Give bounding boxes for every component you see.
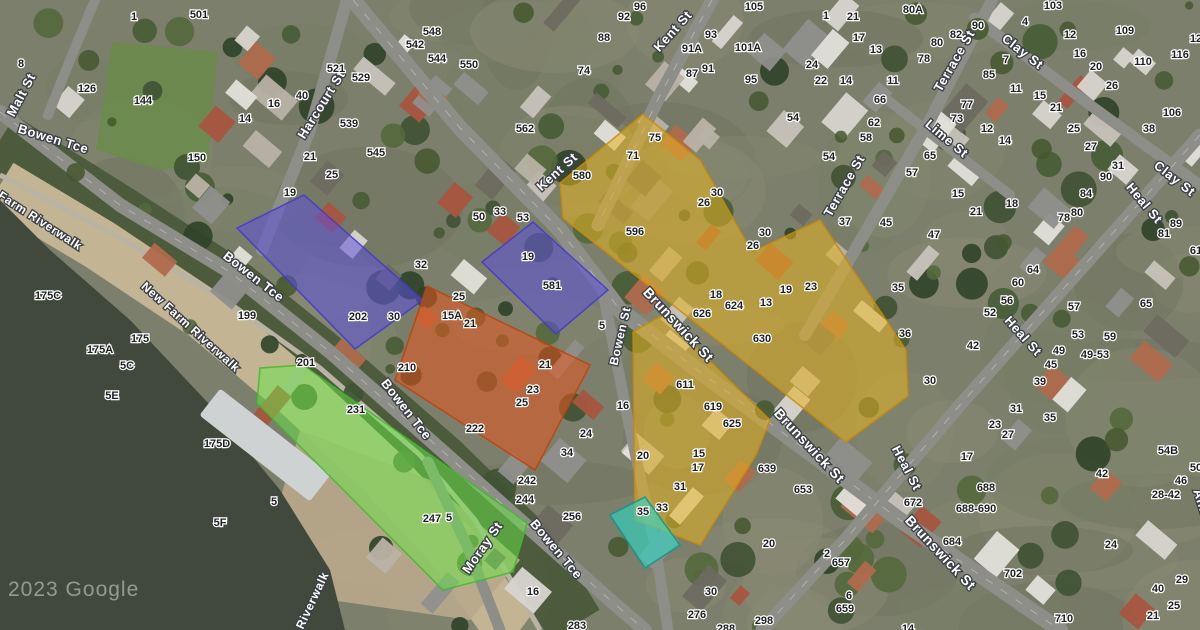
house-number: 639 xyxy=(758,463,776,475)
house-number: 50 xyxy=(1190,462,1200,474)
house-number: 56 xyxy=(1001,295,1013,307)
satellite-map[interactable]: Malt StBowen TceHarcourt StKent StKent S… xyxy=(0,0,1200,630)
house-number: 37 xyxy=(839,216,851,228)
house-number: 29 xyxy=(1176,574,1188,586)
tree xyxy=(414,148,440,174)
house-number: 501 xyxy=(190,9,208,21)
house-number: 12 xyxy=(1064,29,1076,41)
house-number: 21 xyxy=(464,318,476,330)
house-number: 73 xyxy=(951,113,963,125)
house-number: 4 xyxy=(1022,16,1029,28)
tree xyxy=(381,123,406,148)
tree xyxy=(889,128,905,144)
tree xyxy=(385,364,395,374)
house-number: 653 xyxy=(794,484,812,496)
house-number: 105 xyxy=(745,1,763,13)
house-number: 672 xyxy=(904,497,922,509)
tree xyxy=(995,234,1012,251)
house-number: 624 xyxy=(725,300,744,312)
house-number: 59 xyxy=(1104,331,1116,343)
house-number: 16 xyxy=(617,400,629,412)
house-number: 84 xyxy=(1080,188,1093,200)
tree xyxy=(538,113,564,139)
tree xyxy=(78,50,99,71)
tree xyxy=(261,335,279,353)
tree xyxy=(107,117,116,126)
house-number: 58 xyxy=(860,132,872,144)
tree xyxy=(1041,487,1059,505)
house-number: 35 xyxy=(892,282,904,294)
house-number: 288 xyxy=(717,623,735,630)
house-number: 77 xyxy=(961,99,973,111)
house-number: 7 xyxy=(1003,54,1009,66)
house-number: 580 xyxy=(573,170,591,182)
building xyxy=(790,204,813,226)
house-number: 21 xyxy=(970,206,982,218)
tree xyxy=(749,91,769,111)
house-number: 14 xyxy=(840,75,853,87)
tree xyxy=(1055,570,1081,596)
tree xyxy=(734,518,751,535)
house-number: 521 xyxy=(327,63,345,75)
house-number: 20 xyxy=(637,450,649,462)
house-number: 90 xyxy=(1100,171,1112,183)
house-number: 35 xyxy=(1044,412,1056,424)
house-number: 21 xyxy=(539,359,551,371)
house-number: 20 xyxy=(1090,61,1102,73)
house-number: 144 xyxy=(134,95,153,107)
house-number: 50 xyxy=(473,211,485,223)
house-number: 40 xyxy=(296,90,308,102)
house-number: 46 xyxy=(1175,475,1187,487)
house-number: 39 xyxy=(1034,376,1046,388)
house-number: 619 xyxy=(704,401,722,413)
house-number: 101A xyxy=(735,42,761,54)
house-number: 11 xyxy=(887,75,899,87)
tree xyxy=(400,115,430,145)
house-number: 18 xyxy=(710,289,722,301)
house-number: 16 xyxy=(527,586,539,598)
house-number: 57 xyxy=(1068,301,1080,313)
tree xyxy=(498,301,513,316)
house-number: 42 xyxy=(967,340,979,352)
tree xyxy=(282,25,301,44)
house-number: 60 xyxy=(1012,277,1024,289)
tree xyxy=(962,244,981,263)
house-number: 5 xyxy=(446,512,452,524)
house-number: 42 xyxy=(1096,468,1108,480)
house-number: 93 xyxy=(705,29,717,41)
house-number: 25 xyxy=(1068,123,1080,135)
house-number: 71 xyxy=(627,150,639,162)
map-canvas[interactable]: Malt StBowen TceHarcourt StKent StKent S… xyxy=(0,0,1200,630)
house-number: 24 xyxy=(580,428,593,440)
house-number: 54 xyxy=(787,112,800,124)
tree xyxy=(871,557,907,593)
tree xyxy=(720,542,755,577)
house-number: 544 xyxy=(428,53,447,65)
house-number: 550 xyxy=(460,59,478,71)
house-number: 82 xyxy=(950,29,962,41)
house-number: 659 xyxy=(836,603,854,615)
house-number: 96 xyxy=(634,1,646,13)
house-number: 1 xyxy=(131,11,137,23)
tree xyxy=(1179,256,1199,276)
house-number: 16 xyxy=(1074,48,1086,60)
house-number: 26 xyxy=(698,197,710,209)
house-number: 34 xyxy=(561,447,574,459)
house-number: 74 xyxy=(578,65,591,77)
house-number: 109 xyxy=(1116,25,1134,37)
house-number: 80A xyxy=(903,4,923,16)
house-number: 276 xyxy=(688,609,706,621)
building xyxy=(243,130,283,168)
house-number: 5 xyxy=(271,496,277,508)
house-number: 53 xyxy=(517,212,529,224)
house-number: 85 xyxy=(983,69,995,81)
house-number: 126 xyxy=(78,83,96,95)
tree xyxy=(835,131,847,143)
house-number: 78 xyxy=(1058,212,1070,224)
house-number: 32 xyxy=(415,259,427,271)
house-number: 175A xyxy=(87,344,113,356)
tree xyxy=(612,65,622,75)
house-number: 38 xyxy=(1143,123,1155,135)
house-number: 20 xyxy=(763,538,775,550)
house-number: 89 xyxy=(1170,218,1182,230)
house-number: 49-53 xyxy=(1081,349,1109,361)
tree xyxy=(1018,543,1044,569)
house-number: 80 xyxy=(931,37,943,49)
house-number: 87 xyxy=(686,68,698,80)
house-number: 40 xyxy=(1152,583,1164,595)
house-number: 31 xyxy=(1010,403,1022,415)
house-number: 14 xyxy=(902,623,915,630)
house-number: 15A xyxy=(442,310,462,322)
house-number: 64 xyxy=(1027,264,1040,276)
house-number: 1 xyxy=(823,10,829,22)
house-number: 15 xyxy=(1034,90,1046,102)
house-number: 16 xyxy=(268,98,280,110)
house-number: 52 xyxy=(984,307,996,319)
tree xyxy=(881,46,908,73)
house-number: 175D xyxy=(204,438,230,450)
house-number: 18 xyxy=(1006,198,1018,210)
tree xyxy=(165,17,194,46)
tree xyxy=(1031,139,1051,159)
house-number: 256 xyxy=(563,511,581,523)
house-number: 54 xyxy=(823,151,836,163)
tree xyxy=(33,8,63,38)
house-number: 57 xyxy=(906,167,918,179)
house-number: 247 xyxy=(423,513,441,525)
tree xyxy=(927,265,941,279)
house-number: 30 xyxy=(388,311,400,323)
house-number: 210 xyxy=(398,362,416,374)
house-number: 23 xyxy=(527,384,539,396)
house-number: 15 xyxy=(693,448,705,460)
house-number: 22 xyxy=(815,75,827,87)
house-number: 684 xyxy=(943,536,962,548)
tree xyxy=(1155,71,1174,90)
house-number: 5F xyxy=(214,517,227,529)
house-number: 61 xyxy=(1190,245,1200,257)
house-number: 8 xyxy=(18,58,24,70)
house-number: 19 xyxy=(780,284,792,296)
house-number: 626 xyxy=(693,308,711,320)
house-number: 14 xyxy=(999,135,1012,147)
house-number: 31 xyxy=(1112,160,1124,172)
house-number: 199 xyxy=(238,310,256,322)
house-number: 30 xyxy=(759,227,771,239)
house-number: 54B xyxy=(1158,445,1178,457)
house-number: 611 xyxy=(676,379,694,391)
house-number: 24 xyxy=(806,59,819,71)
house-number: 12 xyxy=(1190,33,1200,45)
house-number: 65 xyxy=(924,150,936,162)
house-number: 202 xyxy=(349,311,367,323)
house-number: 24 xyxy=(1105,539,1118,551)
house-number: 45 xyxy=(1045,359,1057,371)
house-number: 5E xyxy=(105,390,118,402)
house-number: 545 xyxy=(367,147,385,159)
house-number: 17 xyxy=(961,451,973,463)
tree xyxy=(434,227,445,238)
house-number: 150 xyxy=(188,152,206,164)
house-number: 14 xyxy=(239,113,252,125)
house-number: 78 xyxy=(918,53,930,65)
house-number: 625 xyxy=(723,418,741,430)
house-number: 244 xyxy=(516,494,535,506)
house-number: 710 xyxy=(1055,613,1073,625)
house-number: 21 xyxy=(1050,102,1062,114)
house-number: 17 xyxy=(853,32,865,44)
house-number: 23 xyxy=(805,281,817,293)
house-number: 19 xyxy=(522,251,534,263)
house-number: 581 xyxy=(543,280,561,292)
house-number: 33 xyxy=(494,206,506,218)
house-number: 30 xyxy=(705,586,717,598)
house-number: 688-690 xyxy=(956,503,996,515)
house-number: 539 xyxy=(340,118,358,130)
house-number: 110 xyxy=(1134,56,1152,68)
tree xyxy=(866,530,885,549)
house-number: 5C xyxy=(120,360,134,372)
house-number: 562 xyxy=(516,123,534,135)
house-number: 26 xyxy=(747,240,759,252)
house-number: 175C xyxy=(35,290,61,302)
house-number: 106 xyxy=(1163,107,1181,119)
tree xyxy=(1105,428,1128,451)
park-lawn xyxy=(96,42,218,170)
street-label-malt-st: Malt St xyxy=(3,71,38,119)
house-number: 242 xyxy=(518,475,536,487)
house-number: 17 xyxy=(692,462,704,474)
house-number: 596 xyxy=(626,226,644,238)
house-number: 65 xyxy=(1140,298,1152,310)
house-number: 630 xyxy=(753,333,771,345)
house-number: 92 xyxy=(618,11,630,23)
house-number: 80 xyxy=(1071,207,1083,219)
tree xyxy=(1110,408,1133,431)
house-number: 35 xyxy=(637,506,649,518)
house-number: 21 xyxy=(1147,610,1159,622)
tree xyxy=(608,537,628,557)
house-number: 90 xyxy=(972,20,984,32)
house-number: 702 xyxy=(1004,568,1022,580)
house-number: 21 xyxy=(847,11,859,23)
house-number: 31 xyxy=(674,481,686,493)
house-number: 47 xyxy=(928,229,940,241)
house-number: 5 xyxy=(599,320,605,332)
house-number: 231 xyxy=(347,404,365,416)
tree xyxy=(1051,521,1079,549)
house-number: 12 xyxy=(981,123,993,135)
house-number: 542 xyxy=(406,39,424,51)
house-number: 25 xyxy=(1168,600,1180,612)
house-number: 116 xyxy=(1171,49,1189,61)
tree xyxy=(67,163,85,181)
house-number: 688 xyxy=(977,482,995,494)
house-number: 2 xyxy=(824,548,830,560)
house-number: 81 xyxy=(1158,228,1170,240)
tree xyxy=(629,11,643,25)
house-number: 13 xyxy=(760,297,772,309)
house-number: 75 xyxy=(649,132,661,144)
house-number: 21 xyxy=(304,151,316,163)
house-number: 25 xyxy=(516,397,528,409)
house-number: 13 xyxy=(870,44,882,56)
house-number: 298 xyxy=(755,615,773,627)
house-number: 657 xyxy=(832,557,850,569)
house-number: 201 xyxy=(297,357,315,369)
house-number: 15 xyxy=(952,188,964,200)
house-number: 45 xyxy=(880,217,892,229)
house-number: 11 xyxy=(1010,83,1022,95)
house-number: 66 xyxy=(874,94,886,106)
house-number: 28-42 xyxy=(1152,489,1180,501)
house-number: 23 xyxy=(989,419,1001,431)
house-number: 222 xyxy=(466,423,484,435)
house-number: 62 xyxy=(868,117,880,129)
tree xyxy=(386,337,404,355)
house-number: 27 xyxy=(1085,141,1097,153)
tree xyxy=(956,268,988,300)
house-number: 548 xyxy=(423,26,441,38)
house-number: 91A xyxy=(682,43,702,55)
house-number: 175 xyxy=(131,333,149,345)
house-number: 6 xyxy=(846,590,852,602)
house-number: 19 xyxy=(284,187,296,199)
house-number: 33 xyxy=(656,502,668,514)
house-number: 26 xyxy=(1106,80,1118,92)
house-number: 49 xyxy=(1053,345,1065,357)
house-number: 95 xyxy=(745,74,757,86)
house-number: 36 xyxy=(899,328,911,340)
tree xyxy=(513,2,534,23)
tree xyxy=(1185,1,1193,9)
house-number: 103 xyxy=(1044,0,1062,12)
house-number: 91 xyxy=(702,63,714,75)
house-number: 25 xyxy=(453,291,465,303)
house-number: 53 xyxy=(1072,329,1084,341)
house-number: 25 xyxy=(326,169,338,181)
house-number: 88 xyxy=(598,32,610,44)
house-number: 27 xyxy=(1002,429,1014,441)
house-number: 283 xyxy=(568,620,586,630)
house-number: 30 xyxy=(924,375,936,387)
house-number: 529 xyxy=(352,72,370,84)
tree xyxy=(352,192,369,209)
house-number: 30 xyxy=(711,187,723,199)
